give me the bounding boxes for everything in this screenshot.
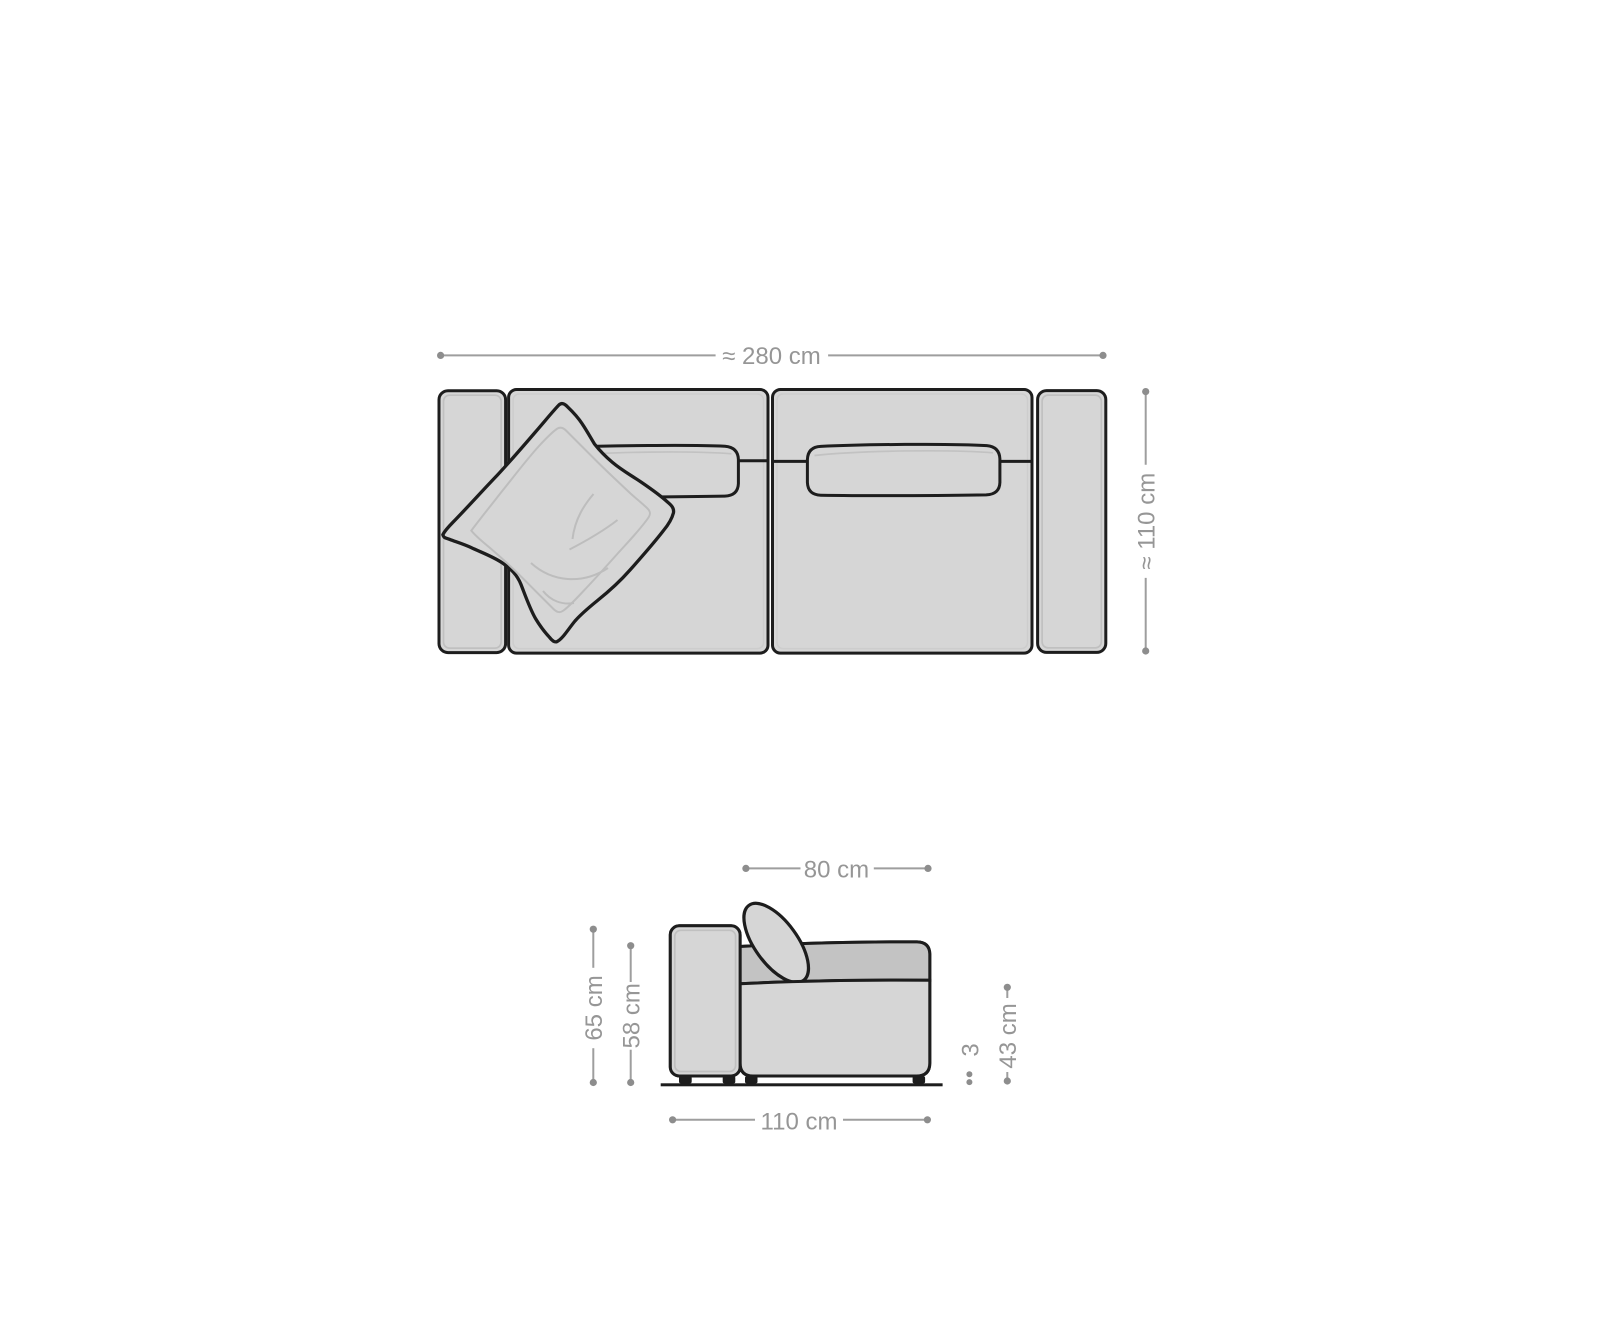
svg-text:≈ 110 cm: ≈ 110 cm: [1134, 473, 1161, 570]
svg-text:65 cm: 65 cm: [581, 975, 608, 1040]
svg-text:43 cm: 43 cm: [995, 1003, 1022, 1068]
svg-text:3: 3: [958, 1043, 985, 1056]
svg-text:80 cm: 80 cm: [804, 856, 869, 883]
svg-text:110 cm: 110 cm: [761, 1109, 838, 1136]
svg-text:≈ 280 cm: ≈ 280 cm: [722, 343, 821, 370]
svg-text:58 cm: 58 cm: [619, 983, 646, 1048]
